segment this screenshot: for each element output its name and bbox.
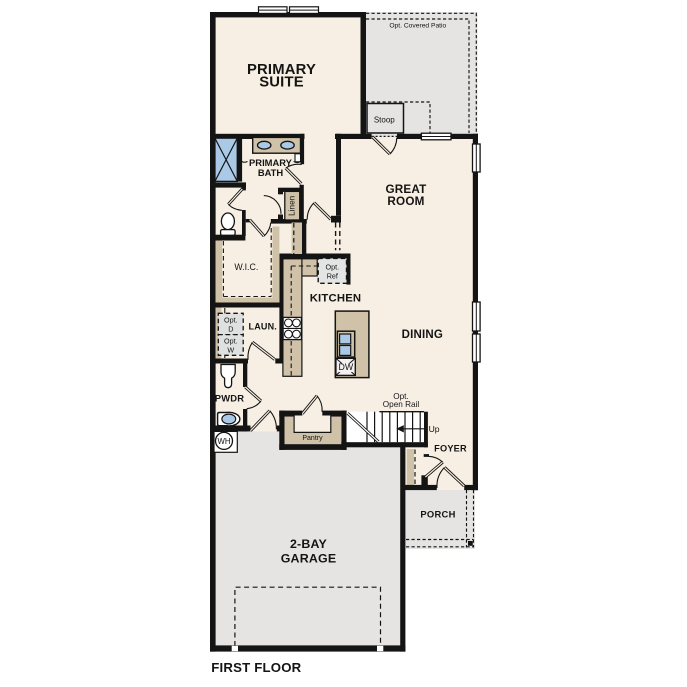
- svg-text:Ref: Ref: [327, 272, 338, 281]
- svg-text:2-BAY: 2-BAY: [290, 537, 328, 551]
- svg-text:Opt.: Opt.: [224, 337, 238, 346]
- svg-text:W.I.C.: W.I.C.: [234, 262, 258, 272]
- svg-text:WH: WH: [218, 437, 231, 446]
- svg-text:ROOM: ROOM: [387, 195, 424, 208]
- svg-text:D: D: [228, 325, 233, 334]
- svg-text:KITCHEN: KITCHEN: [310, 293, 362, 305]
- svg-text:W: W: [227, 346, 234, 355]
- svg-text:LAUN.: LAUN.: [249, 322, 278, 332]
- svg-text:PWDR: PWDR: [215, 393, 244, 404]
- svg-text:GREAT: GREAT: [385, 183, 427, 196]
- svg-text:Opt.: Opt.: [224, 315, 238, 324]
- svg-text:Opt. Covered Patio: Opt. Covered Patio: [389, 22, 446, 29]
- svg-text:Open Rail: Open Rail: [383, 400, 420, 409]
- svg-text:Linen: Linen: [288, 195, 297, 215]
- svg-text:PORCH: PORCH: [420, 508, 455, 519]
- svg-text:Stoop: Stoop: [374, 116, 395, 125]
- svg-text:SUITE: SUITE: [259, 75, 304, 91]
- svg-text:DINING: DINING: [402, 329, 443, 341]
- svg-text:DW: DW: [338, 362, 353, 372]
- svg-text:GARAGE: GARAGE: [281, 551, 337, 565]
- svg-text:Pantry: Pantry: [302, 435, 323, 442]
- svg-text:Opt.: Opt.: [326, 263, 340, 272]
- svg-text:Up: Up: [429, 424, 440, 434]
- svg-text:FOYER: FOYER: [434, 444, 467, 454]
- svg-text:BATH: BATH: [258, 167, 284, 178]
- svg-text:FIRST FLOOR: FIRST FLOOR: [211, 660, 301, 675]
